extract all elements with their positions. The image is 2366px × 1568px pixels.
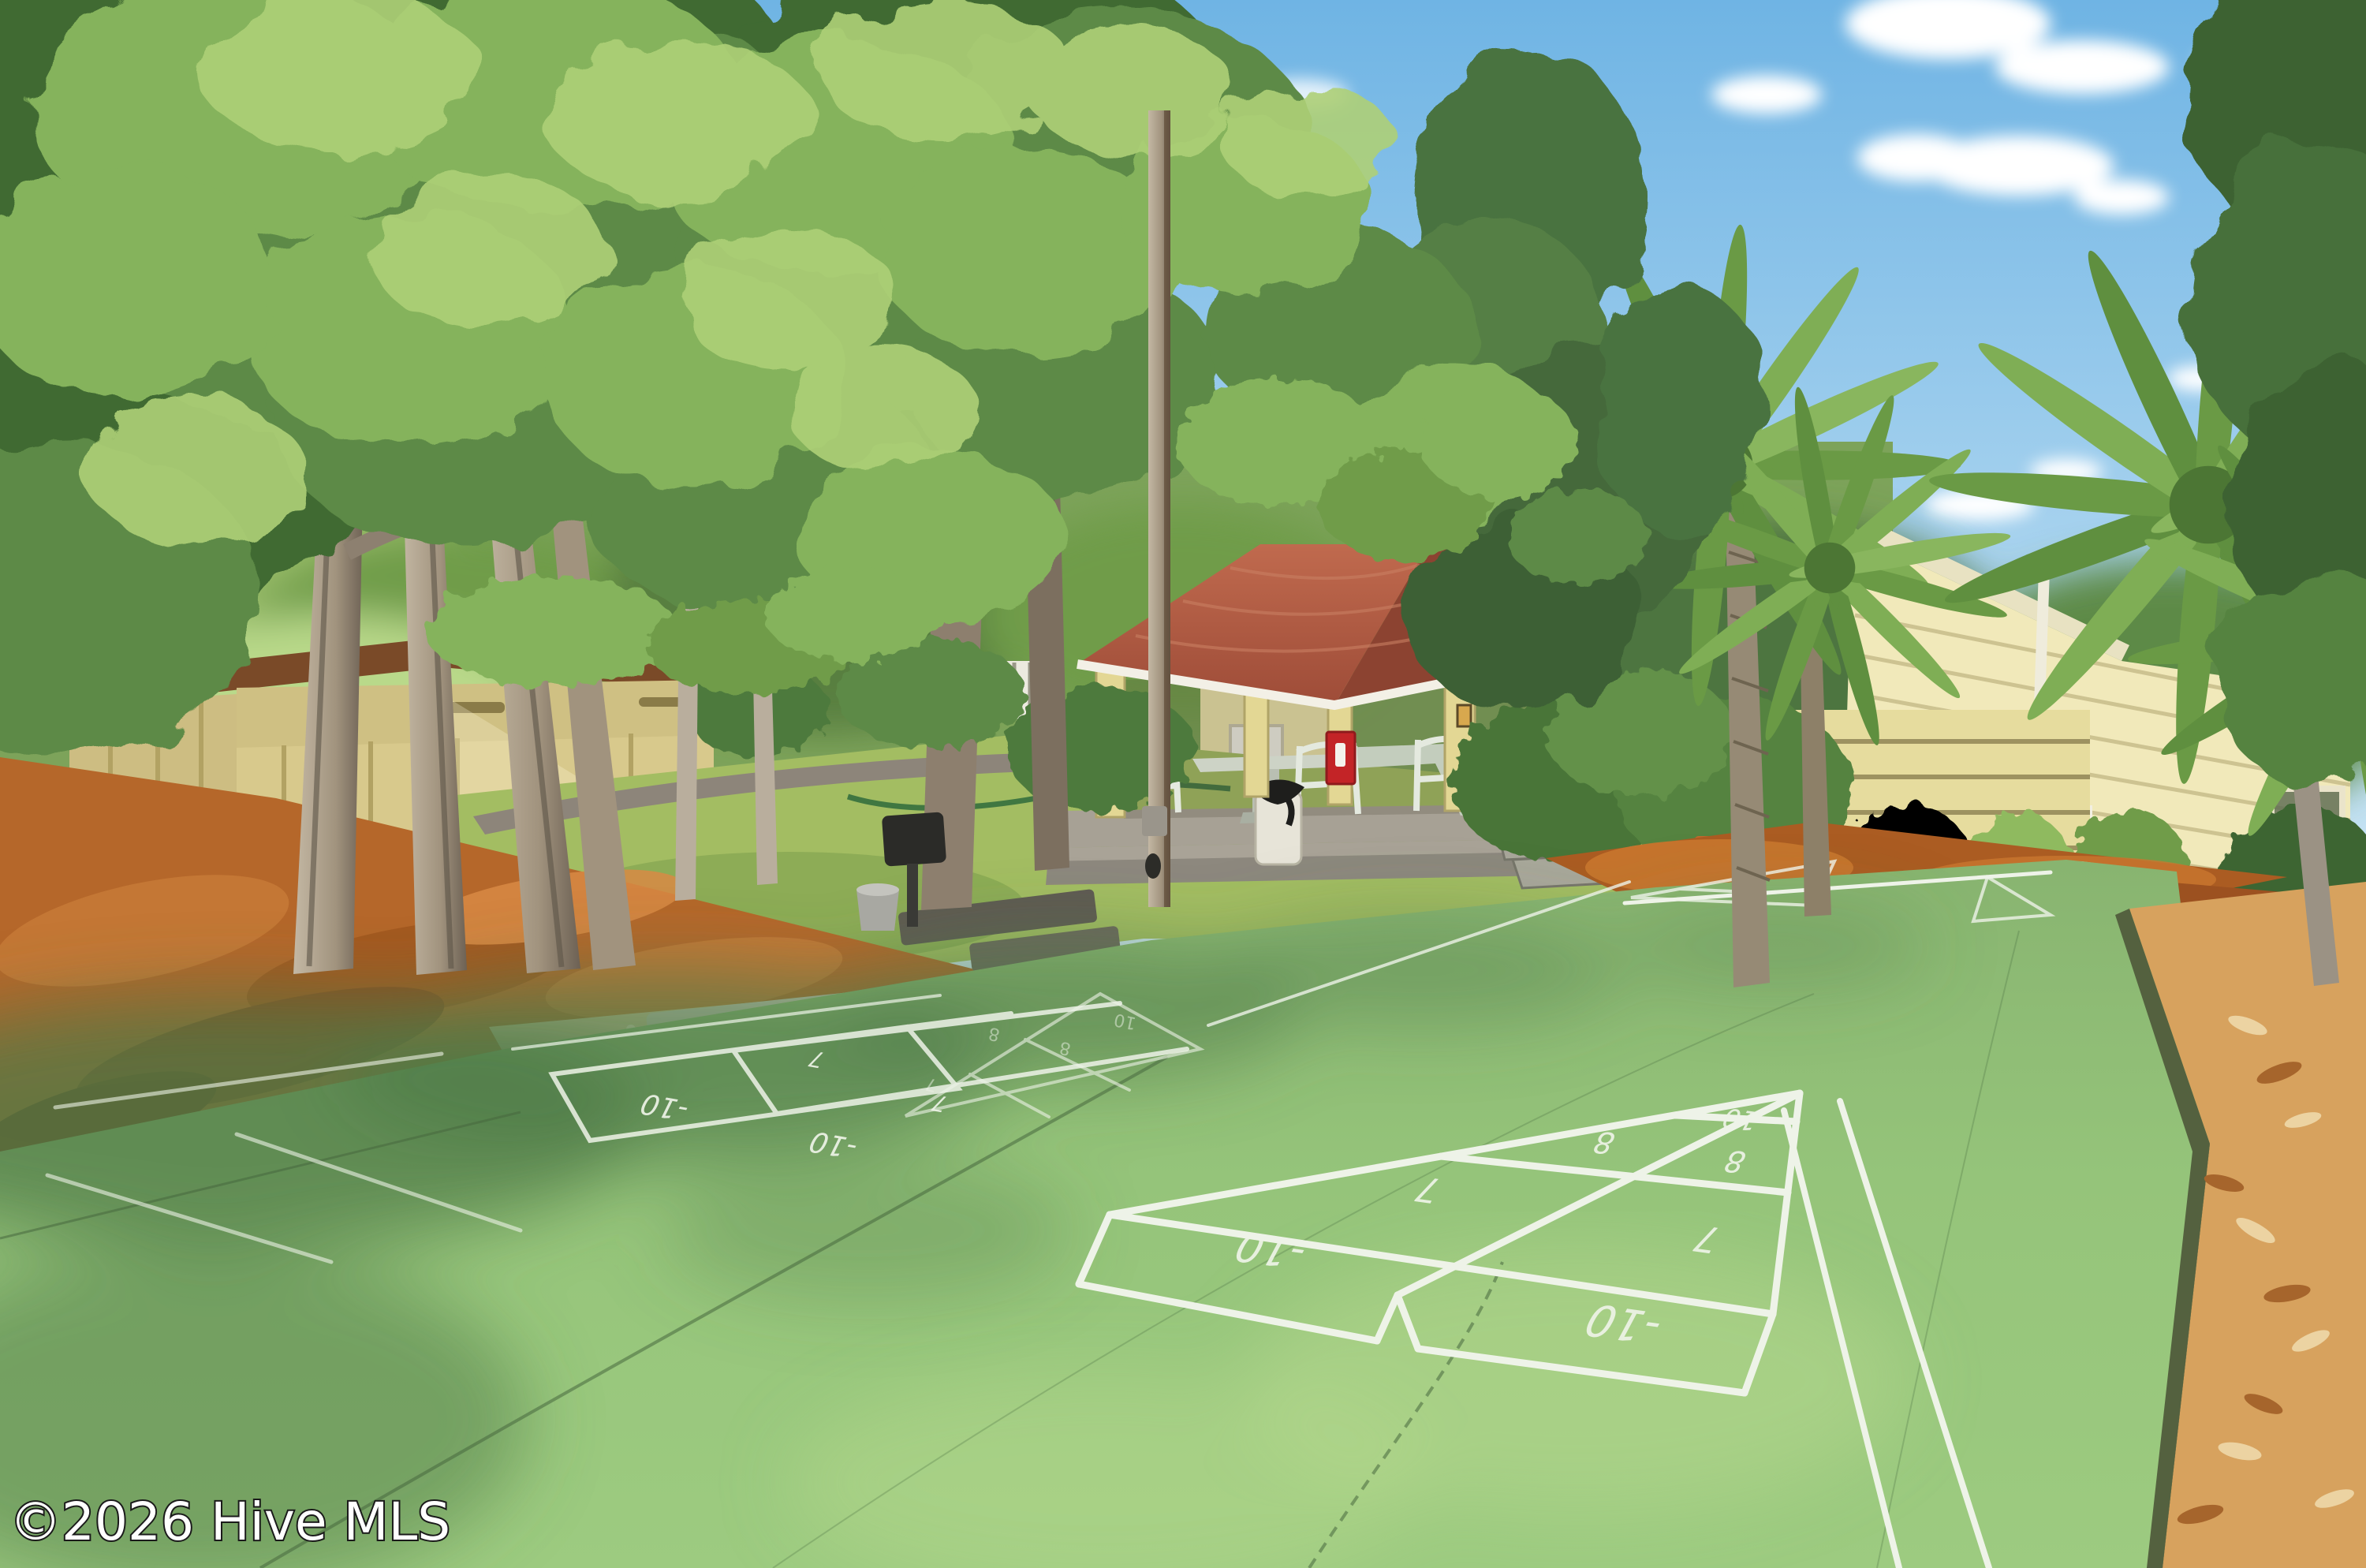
pole-meter-box <box>1142 806 1167 836</box>
watermark: ©2026 Hive MLS <box>9 1491 450 1552</box>
listing-photo: 1326 <box>0 0 2366 1568</box>
fire-extinguisher-box <box>1327 732 1355 784</box>
galvanized-bucket <box>856 883 899 931</box>
